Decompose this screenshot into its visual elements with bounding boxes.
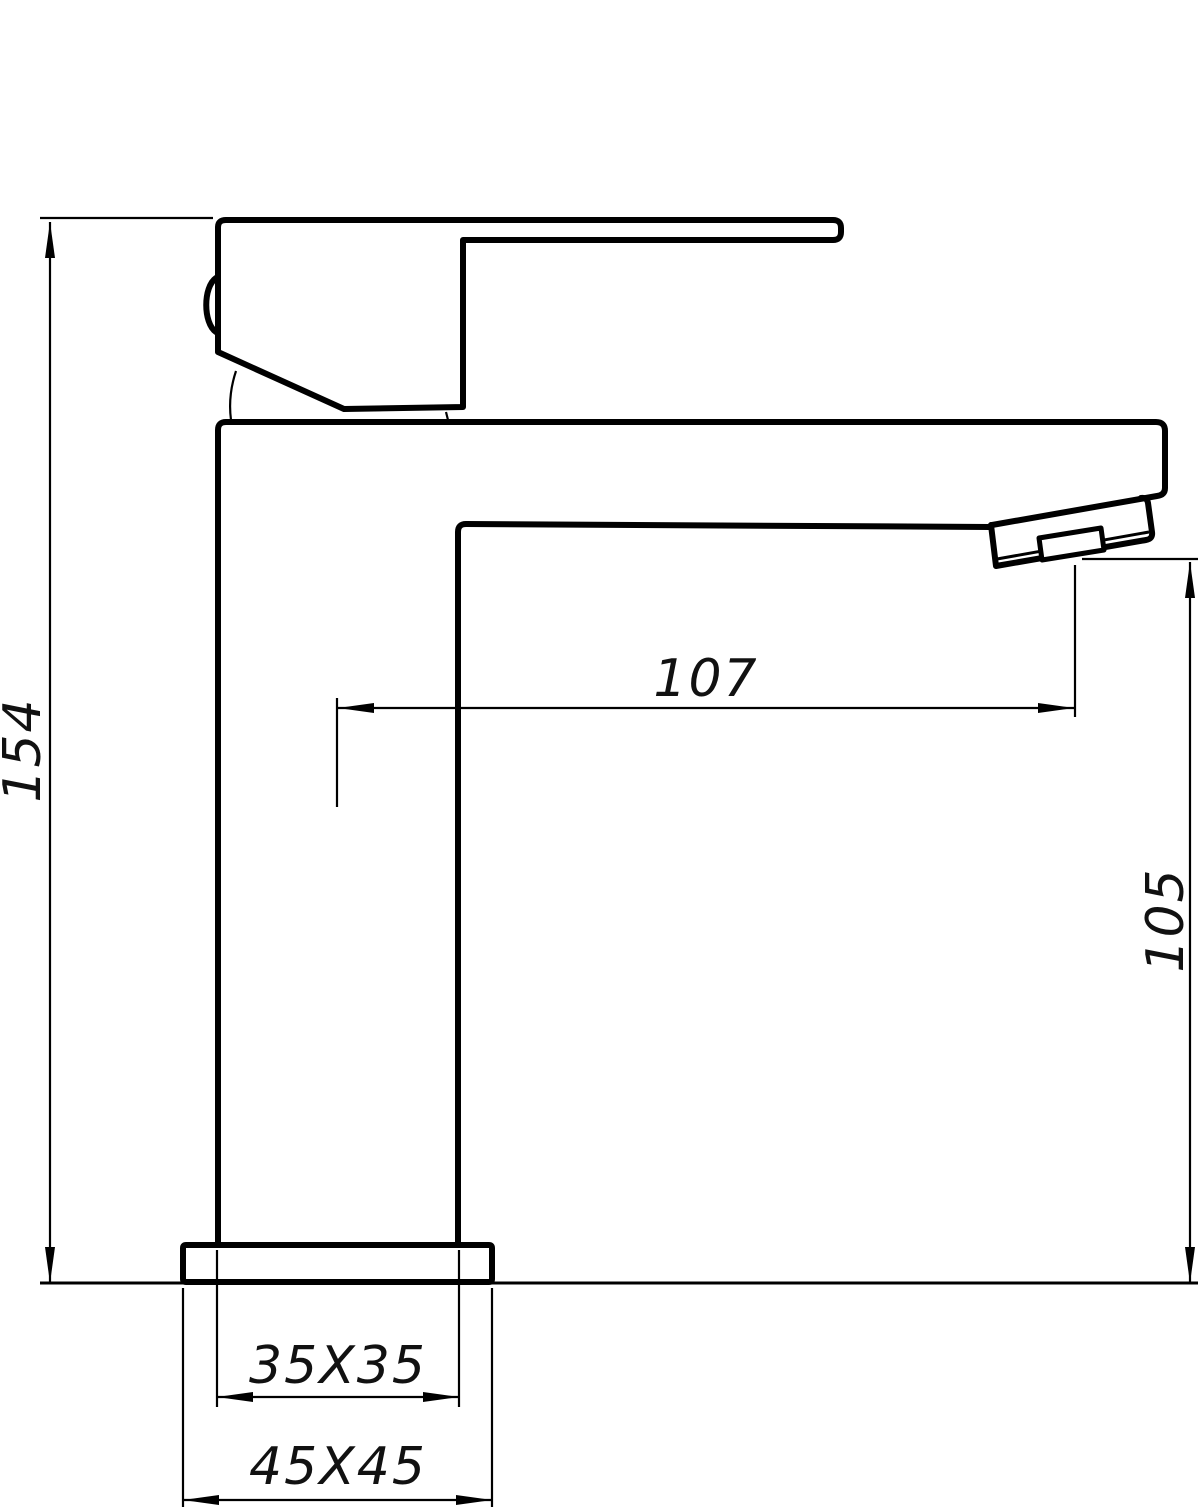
handle-cartridge-bulge <box>206 278 216 332</box>
handle-body-notch <box>446 412 448 420</box>
dim-spout-reach-arrow-right <box>1038 703 1074 713</box>
dim-base-section-label: 45X45 <box>249 1437 427 1497</box>
dim-spout-reach-arrow-left <box>338 703 374 713</box>
dim-base-section-arrow-left <box>183 1495 219 1505</box>
dim-spout-reach-label: 107 <box>653 649 758 709</box>
dim-outlet-height-arrow-up <box>1185 562 1195 598</box>
faucet-outline <box>183 220 1165 1282</box>
dim-outlet-height: 105 <box>1082 559 1198 1283</box>
aerator-nozzle <box>1039 528 1104 560</box>
handle-lever-outline <box>218 220 841 409</box>
dim-total-height-arrow-up <box>45 222 55 258</box>
handle-pivot-arc <box>230 371 236 420</box>
dim-spout-reach: 107 <box>337 565 1075 807</box>
faucet-technical-drawing: 154 107 105 35X35 <box>0 0 1200 1509</box>
spout-underside <box>458 524 990 1245</box>
dim-outlet-height-label: 105 <box>1136 867 1196 972</box>
dim-total-height: 154 <box>0 218 213 1283</box>
dim-total-height-label: 154 <box>0 697 53 802</box>
drawing-canvas: 154 107 105 35X35 <box>0 0 1200 1509</box>
dim-outlet-height-arrow-down <box>1185 1247 1195 1283</box>
dim-body-section-arrow-left <box>217 1392 253 1402</box>
dim-body-section-arrow-right <box>423 1392 459 1402</box>
dim-total-height-arrow-down <box>45 1247 55 1283</box>
base-plate <box>183 1245 492 1282</box>
dim-body-section-label: 35X35 <box>249 1336 427 1396</box>
dim-base-section-arrow-right <box>456 1495 492 1505</box>
body-spout-outline <box>218 422 1165 1245</box>
